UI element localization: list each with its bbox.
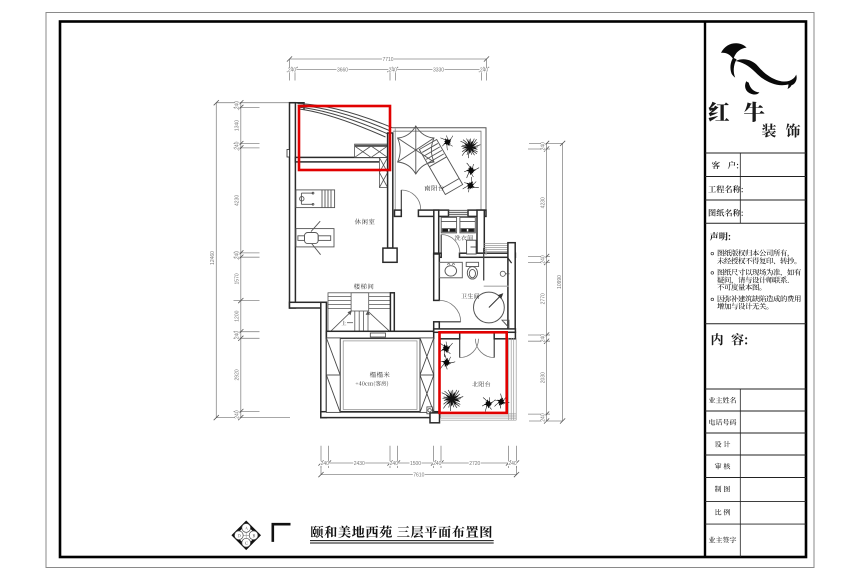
svg-text:1500: 1500 <box>410 461 421 467</box>
svg-text:240: 240 <box>389 67 398 73</box>
svg-text:3330: 3330 <box>433 67 444 73</box>
svg-text:2430: 2430 <box>354 461 365 467</box>
svg-text:240: 240 <box>541 255 547 264</box>
svg-text:2770: 2770 <box>541 293 547 304</box>
svg-text:240: 240 <box>508 461 517 467</box>
svg-text:1200: 1200 <box>235 310 241 321</box>
svg-text:1340: 1340 <box>235 120 241 131</box>
svg-text:240: 240 <box>480 67 489 73</box>
svg-text:10990: 10990 <box>557 275 563 289</box>
svg-text:240: 240 <box>235 331 241 340</box>
svg-text:2920: 2920 <box>235 369 241 380</box>
svg-text:3660: 3660 <box>337 67 348 73</box>
svg-text:240: 240 <box>235 141 241 150</box>
svg-text:2030: 2030 <box>541 372 547 383</box>
svg-text:7710: 7710 <box>382 57 393 63</box>
svg-text:2720: 2720 <box>469 461 480 467</box>
svg-text:4230: 4230 <box>541 197 547 208</box>
svg-text:240: 240 <box>390 461 399 467</box>
svg-text:4230: 4230 <box>235 195 241 206</box>
svg-text:240: 240 <box>541 142 547 151</box>
svg-text:240: 240 <box>321 461 330 467</box>
svg-text:1570: 1570 <box>235 273 241 284</box>
svg-text:240: 240 <box>541 334 547 343</box>
svg-text:240: 240 <box>288 67 297 73</box>
svg-text:12460: 12460 <box>210 251 216 265</box>
svg-text:240: 240 <box>235 251 241 260</box>
svg-text:240: 240 <box>235 101 241 110</box>
svg-text:240: 240 <box>541 413 547 422</box>
svg-text:240: 240 <box>433 461 442 467</box>
svg-text:240: 240 <box>235 410 241 419</box>
svg-text:7610: 7610 <box>413 473 424 479</box>
